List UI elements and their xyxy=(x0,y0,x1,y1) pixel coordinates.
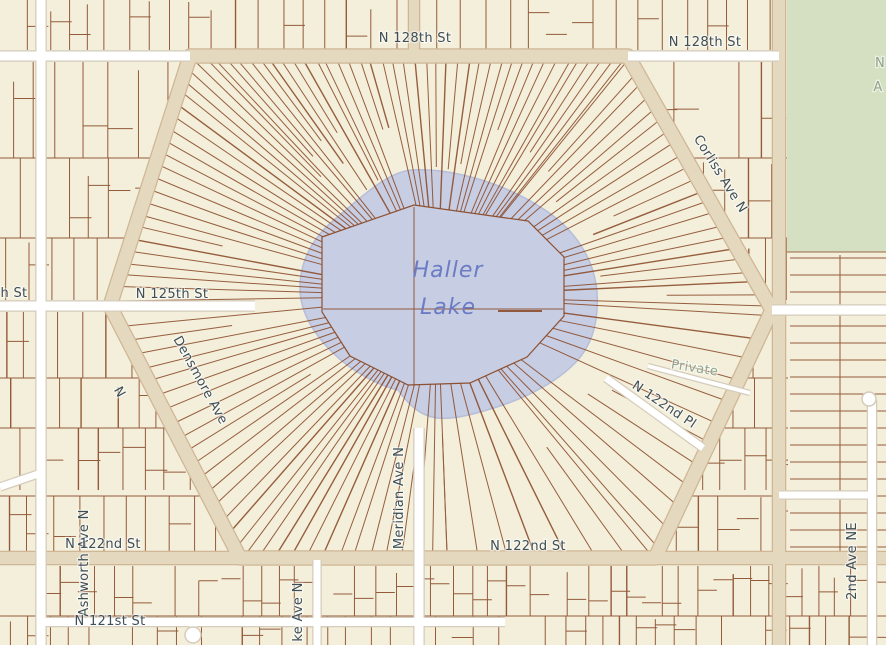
burke-ave-n-partial-label: ke Ave N xyxy=(291,582,306,641)
2nd-ave-ne-label: 2nd Ave NE xyxy=(845,522,860,600)
n-128th-st-west-label: N 128th St xyxy=(379,31,452,46)
n-125th-st-label: N 125th St xyxy=(136,287,209,302)
meridian-ave-n-label: Meridian Ave N xyxy=(392,447,407,549)
park-label-frag-1-label: N xyxy=(875,56,885,71)
parcel-map-svg: N 128th StN 128th StCorliss Ave Nh StN 1… xyxy=(0,0,886,645)
park-label-frag-2-label: A xyxy=(873,80,882,95)
ashworth-ave-n-label: Ashworth Ave N xyxy=(77,509,92,616)
n-128th-st-east-label: N 128th St xyxy=(669,35,742,50)
cul-de-sac xyxy=(185,627,201,643)
n-122nd-st-center-label: N 122nd St xyxy=(490,539,566,554)
cul-de-sac xyxy=(862,392,876,406)
n-125th-st-partial-label: h St xyxy=(1,286,28,301)
n-122nd-st-west-label: N 122nd St xyxy=(65,537,141,552)
map-canvas[interactable]: N 128th StN 128th StCorliss Ave Nh StN 1… xyxy=(0,0,886,645)
park-area xyxy=(787,0,886,252)
n-121st-st-label: N 121st St xyxy=(74,614,145,629)
